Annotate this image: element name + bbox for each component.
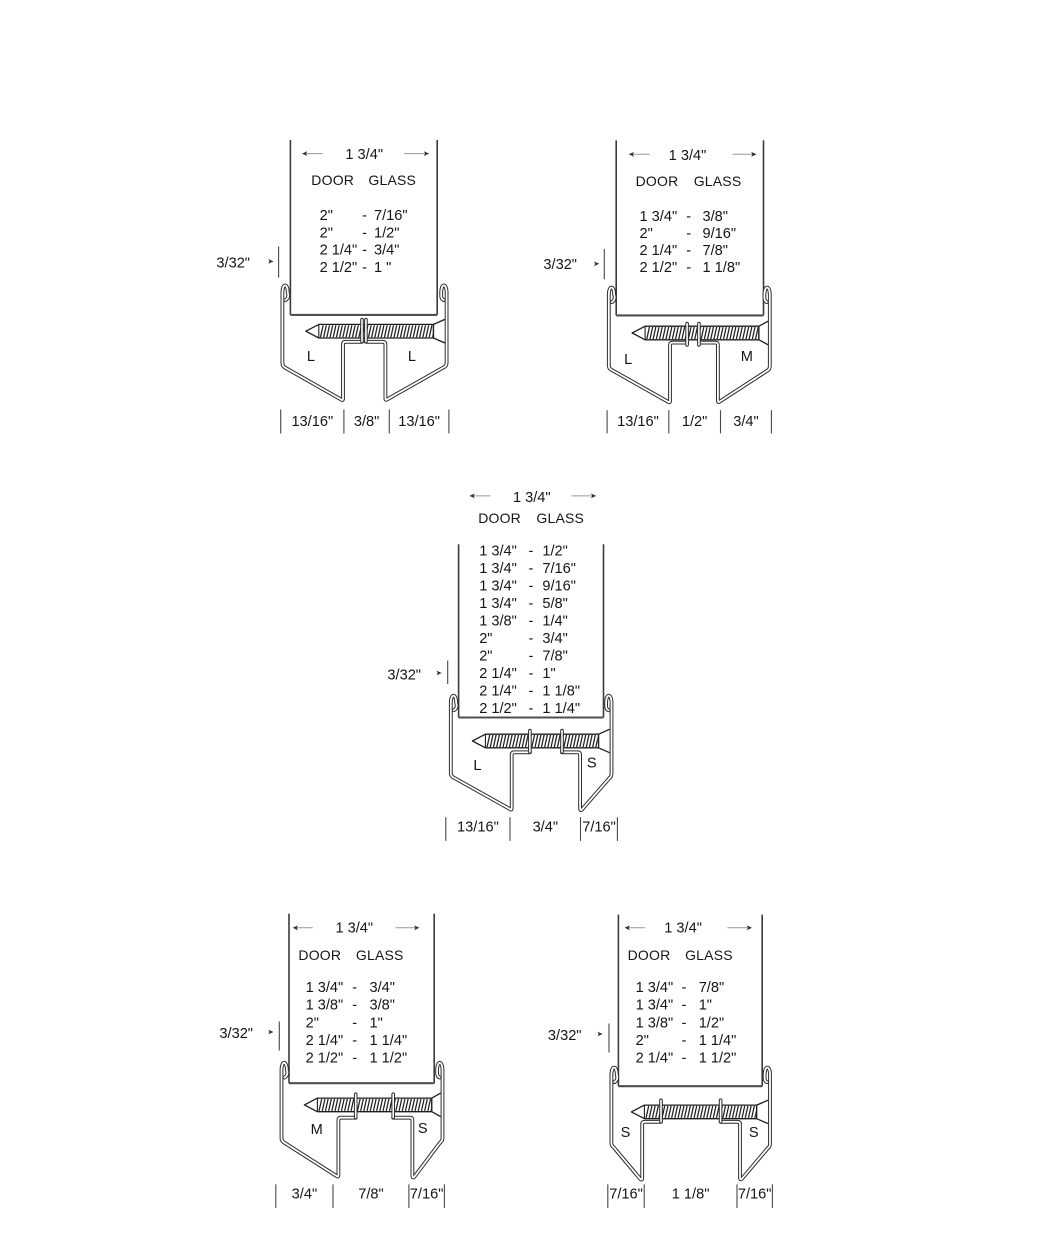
- svg-text:3/4": 3/4": [733, 414, 758, 430]
- svg-text:-: -: [681, 1051, 686, 1067]
- svg-text:1 1/4": 1 1/4": [370, 1033, 408, 1049]
- svg-text:5/8": 5/8": [542, 596, 567, 612]
- svg-text:L: L: [408, 349, 416, 365]
- svg-text:2 1/2": 2 1/2": [640, 260, 678, 276]
- svg-text:3/8": 3/8": [703, 209, 728, 225]
- svg-text:-: -: [528, 543, 533, 559]
- svg-text:1 3/4": 1 3/4": [479, 578, 517, 594]
- svg-text:GLASS: GLASS: [694, 173, 742, 189]
- svg-text:1 1/2": 1 1/2": [370, 1051, 408, 1067]
- svg-text:13/16": 13/16": [291, 414, 333, 430]
- svg-text:-: -: [528, 578, 533, 594]
- svg-text:1/4": 1/4": [542, 614, 567, 630]
- svg-text:2": 2": [320, 208, 333, 224]
- svg-text:-: -: [528, 666, 533, 682]
- svg-text:3/4": 3/4": [370, 980, 395, 996]
- svg-text:3/8": 3/8": [370, 998, 395, 1014]
- svg-text:-: -: [528, 561, 533, 577]
- svg-text:GLASS: GLASS: [685, 947, 733, 963]
- svg-text:1 1/8": 1 1/8": [703, 260, 741, 276]
- svg-text:-: -: [352, 980, 357, 996]
- svg-text:2 1/4": 2 1/4": [636, 1051, 674, 1067]
- svg-text:2": 2": [636, 1033, 649, 1049]
- svg-text:3/32": 3/32": [543, 257, 577, 273]
- svg-text:2 1/2": 2 1/2": [306, 1051, 344, 1067]
- svg-text:DOOR: DOOR: [298, 947, 341, 963]
- svg-text:-: -: [352, 1015, 357, 1031]
- svg-text:DOOR: DOOR: [628, 947, 671, 963]
- svg-text:1 3/8": 1 3/8": [306, 998, 344, 1014]
- svg-text:1 3/4": 1 3/4": [640, 209, 678, 225]
- svg-text:-: -: [362, 225, 367, 241]
- svg-text:-: -: [681, 1015, 686, 1031]
- svg-text:1 ": 1 ": [374, 260, 391, 276]
- svg-text:L: L: [473, 758, 481, 774]
- svg-text:1/2": 1/2": [542, 543, 567, 559]
- svg-text:S: S: [621, 1125, 631, 1141]
- svg-text:L: L: [307, 349, 315, 365]
- svg-text:3/4": 3/4": [542, 631, 567, 647]
- svg-text:2 1/2": 2 1/2": [479, 701, 517, 717]
- svg-text:-: -: [681, 998, 686, 1014]
- svg-text:1 3/8": 1 3/8": [479, 614, 517, 630]
- svg-text:1 3/8": 1 3/8": [636, 1015, 674, 1031]
- svg-text:1 3/4": 1 3/4": [664, 921, 702, 937]
- svg-text:-: -: [686, 260, 691, 276]
- svg-text:7/16": 7/16": [410, 1187, 444, 1203]
- svg-text:2 1/4": 2 1/4": [479, 666, 517, 682]
- svg-text:3/4": 3/4": [533, 820, 558, 836]
- svg-text:13/16": 13/16": [398, 414, 440, 430]
- svg-text:-: -: [352, 1033, 357, 1049]
- svg-text:7/16": 7/16": [542, 561, 576, 577]
- svg-text:-: -: [528, 631, 533, 647]
- svg-text:13/16": 13/16": [617, 414, 659, 430]
- svg-text:1 1/4": 1 1/4": [542, 701, 580, 717]
- svg-text:3/32": 3/32": [548, 1028, 582, 1044]
- svg-text:1 3/4": 1 3/4": [335, 921, 373, 937]
- svg-text:S: S: [418, 1121, 428, 1137]
- svg-text:M: M: [311, 1122, 323, 1138]
- svg-text:GLASS: GLASS: [536, 510, 584, 526]
- svg-text:-: -: [681, 980, 686, 996]
- svg-text:3/8": 3/8": [354, 414, 379, 430]
- svg-text:-: -: [362, 208, 367, 224]
- svg-text:-: -: [681, 1033, 686, 1049]
- svg-text:2 1/4": 2 1/4": [320, 243, 358, 259]
- svg-text:DOOR: DOOR: [311, 172, 354, 188]
- svg-text:13/16": 13/16": [457, 820, 499, 836]
- svg-text:-: -: [686, 243, 691, 259]
- svg-text:2": 2": [320, 225, 333, 241]
- svg-text:7/16": 7/16": [374, 208, 408, 224]
- svg-text:1 1/8": 1 1/8": [542, 684, 580, 700]
- svg-text:S: S: [749, 1125, 759, 1141]
- svg-text:L: L: [624, 352, 632, 368]
- svg-text:2 1/4": 2 1/4": [479, 684, 517, 700]
- svg-text:1 3/4": 1 3/4": [513, 490, 551, 506]
- svg-text:2 1/2": 2 1/2": [320, 260, 358, 276]
- svg-text:1 1/2": 1 1/2": [699, 1051, 737, 1067]
- svg-text:2": 2": [479, 649, 492, 665]
- svg-text:3/32": 3/32": [219, 1026, 253, 1042]
- svg-text:1 3/4": 1 3/4": [479, 596, 517, 612]
- svg-text:-: -: [528, 684, 533, 700]
- svg-text:1": 1": [370, 1015, 383, 1031]
- svg-text:1 3/4": 1 3/4": [669, 148, 707, 164]
- svg-text:1 3/4": 1 3/4": [636, 980, 674, 996]
- svg-text:2": 2": [479, 631, 492, 647]
- svg-text:2": 2": [640, 226, 653, 242]
- svg-text:7/8": 7/8": [703, 243, 728, 259]
- svg-text:7/16": 7/16": [609, 1187, 643, 1203]
- svg-text:1 3/4": 1 3/4": [479, 543, 517, 559]
- svg-text:7/16": 7/16": [582, 820, 616, 836]
- svg-text:9/16": 9/16": [703, 226, 737, 242]
- svg-text:2 1/4": 2 1/4": [306, 1033, 344, 1049]
- svg-text:DOOR: DOOR: [636, 173, 679, 189]
- svg-text:2 1/4": 2 1/4": [640, 243, 678, 259]
- svg-text:-: -: [686, 226, 691, 242]
- svg-text:GLASS: GLASS: [368, 172, 416, 188]
- svg-text:7/8": 7/8": [699, 980, 724, 996]
- svg-text:3/32": 3/32": [216, 256, 250, 272]
- svg-text:-: -: [528, 596, 533, 612]
- svg-text:7/8": 7/8": [542, 649, 567, 665]
- svg-text:1 3/4": 1 3/4": [636, 998, 674, 1014]
- svg-text:7/8": 7/8": [358, 1187, 383, 1203]
- svg-text:-: -: [362, 243, 367, 259]
- svg-text:1": 1": [542, 666, 555, 682]
- svg-text:DOOR: DOOR: [478, 510, 521, 526]
- svg-text:1 1/4": 1 1/4": [699, 1033, 737, 1049]
- svg-text:1 3/4": 1 3/4": [306, 980, 344, 996]
- svg-text:1/2": 1/2": [682, 414, 707, 430]
- svg-text:GLASS: GLASS: [356, 947, 404, 963]
- svg-text:7/16": 7/16": [738, 1187, 772, 1203]
- svg-text:1 1/8": 1 1/8": [672, 1187, 710, 1203]
- svg-text:-: -: [528, 701, 533, 717]
- svg-text:-: -: [528, 649, 533, 665]
- svg-text:-: -: [352, 1051, 357, 1067]
- svg-text:3/4": 3/4": [292, 1187, 317, 1203]
- svg-text:3/4": 3/4": [374, 243, 399, 259]
- svg-text:9/16": 9/16": [542, 578, 576, 594]
- svg-text:-: -: [362, 260, 367, 276]
- svg-text:-: -: [686, 209, 691, 225]
- svg-text:1 3/4": 1 3/4": [479, 561, 517, 577]
- svg-text:1": 1": [699, 998, 712, 1014]
- svg-text:1 3/4": 1 3/4": [345, 147, 383, 163]
- svg-text:3/32": 3/32": [387, 668, 421, 684]
- svg-text:1/2": 1/2": [699, 1015, 724, 1031]
- svg-text:-: -: [528, 614, 533, 630]
- svg-text:-: -: [352, 998, 357, 1014]
- svg-text:2": 2": [306, 1015, 319, 1031]
- svg-text:S: S: [587, 756, 597, 772]
- svg-text:M: M: [741, 349, 753, 365]
- svg-text:1/2": 1/2": [374, 225, 399, 241]
